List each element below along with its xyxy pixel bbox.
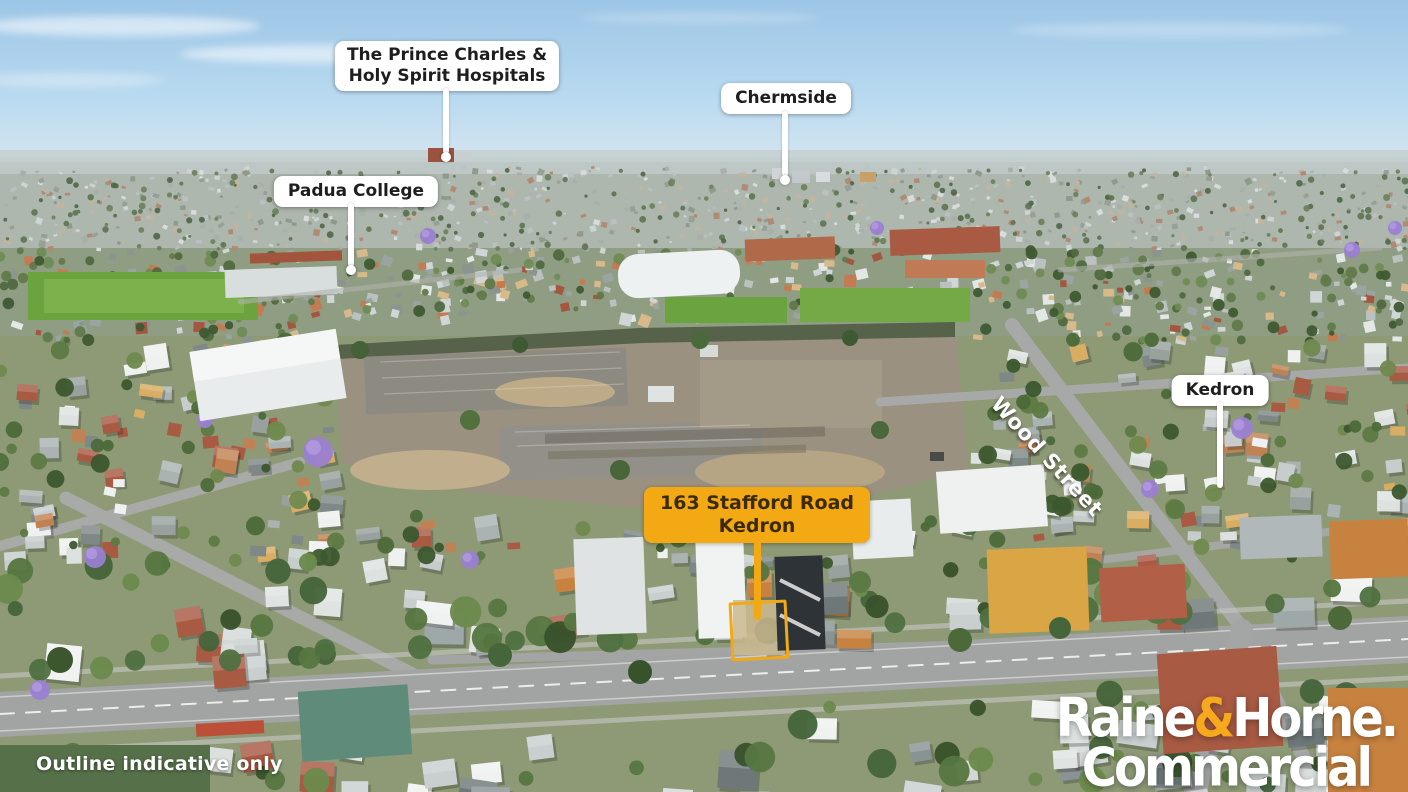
pointer-dot (441, 152, 451, 162)
pointer-stem (782, 111, 788, 177)
callout-text-line2: Holy Spirit Hospitals (347, 66, 547, 87)
brand-logo: Raine&Horne. Commercial (1056, 693, 1396, 792)
callout-text-line1: The Prince Charles & (347, 45, 547, 66)
aerial-photo: The Prince Charles & Holy Spirit Hospita… (0, 0, 1408, 792)
callout-label: The Prince Charles & Holy Spirit Hospita… (335, 41, 559, 91)
callout-label: Chermside (721, 83, 851, 114)
logo-period: . (1381, 687, 1396, 750)
pointer-stem (1217, 402, 1223, 488)
property-outline (728, 600, 789, 662)
pointer-stem (443, 88, 449, 154)
property-address-line1: 163 Stafford Road (660, 492, 854, 515)
logo-commercial: Commercial (1056, 743, 1396, 792)
pointer-stem (348, 203, 354, 267)
pointer-dot (346, 265, 356, 275)
callout-label: Padua College (274, 176, 438, 207)
disclaimer-text: Outline indicative only (36, 753, 283, 775)
pointer-dot (780, 175, 790, 185)
